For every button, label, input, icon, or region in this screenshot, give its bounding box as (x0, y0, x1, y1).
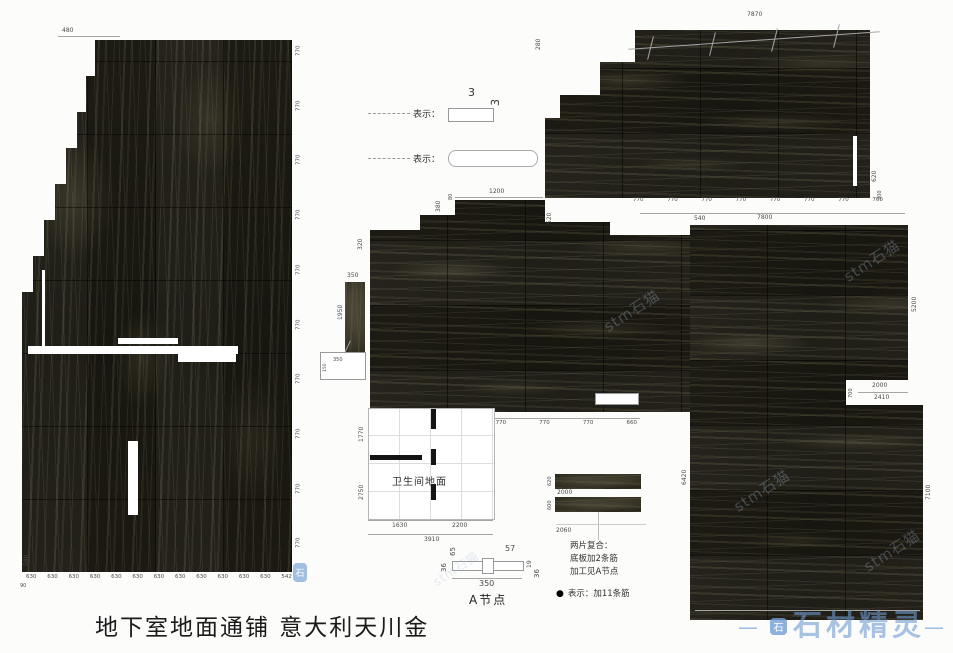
wall-segment (431, 449, 436, 465)
composite-strip-1 (555, 474, 641, 489)
right-stone-panel (690, 225, 925, 620)
dim-label: 770 (804, 198, 815, 204)
dim-label: 630 (175, 575, 186, 581)
brand-dash-left: — (738, 615, 758, 639)
dim-label: 770 (667, 198, 678, 204)
dim-label: 2410 (874, 395, 889, 401)
dim-label: 620 (872, 171, 878, 182)
dim-label: 770 (701, 198, 712, 204)
dim-label: 5200 (912, 297, 918, 312)
dim-label: 2000 (872, 383, 887, 389)
dim-label: 1950 (338, 305, 344, 320)
dim-line (640, 213, 905, 214)
brand-logo-icon: 石 (770, 618, 787, 635)
dim-label: 2060 (556, 528, 571, 534)
left-panel-gap (178, 354, 236, 362)
left-panel-joint-grid (20, 40, 292, 572)
dim-label: 770 (539, 421, 550, 427)
dim-label: 3910 (424, 537, 439, 543)
dim-label: 630 (132, 575, 143, 581)
dim-label: 80 (449, 194, 454, 200)
dim-label: 770 (496, 421, 507, 427)
dim-label: 770 (736, 198, 747, 204)
dim-label: 36 (441, 563, 448, 572)
brand-icon-glyph: 石 (295, 566, 304, 579)
dim-label: 770 (297, 155, 303, 166)
top-right-joint-grid (545, 30, 870, 198)
dim-label: 660 (627, 421, 638, 427)
dim-label: 1630 (392, 523, 407, 529)
dim-label: 630 (47, 575, 58, 581)
a-node-title: A节点 (469, 591, 507, 608)
dim-label: 380 (436, 201, 442, 212)
dim-label: 7870 (747, 12, 762, 18)
thickness-dim: 3 (489, 98, 503, 106)
drawing-title: 地下室地面通铺 意大利天川金 (95, 608, 429, 642)
dim-label: 770 (583, 421, 594, 427)
legend-label-1: 表示： (413, 107, 440, 120)
dim-label: 542 (281, 575, 292, 581)
top-right-stone-panel (545, 30, 870, 198)
center-joint-grid (370, 200, 690, 435)
dim-label: 2200 (452, 523, 467, 529)
dim-line (858, 392, 908, 393)
dim-label: 770 (838, 198, 849, 204)
brand-dash-right: — (924, 615, 944, 639)
left-panel-right-dims: 770770770770770770770770770770 (295, 48, 304, 546)
dim-label: 1200 (489, 189, 504, 195)
dim-label: 520 (547, 213, 553, 224)
dim-label: 700 (872, 198, 883, 204)
legend-profile-flat (448, 108, 494, 122)
dim-label: 350 (333, 358, 343, 363)
dim-label: 770 (633, 198, 644, 204)
left-panel-gap (128, 441, 138, 515)
dim-label: 630 (90, 575, 101, 581)
dim-label: 19 (527, 560, 533, 568)
extension-line (556, 524, 646, 525)
wall-segment (370, 455, 422, 460)
dim-label: 2750 (359, 485, 365, 500)
dim-label: 36 (534, 569, 541, 578)
center-stone-panel (370, 200, 690, 435)
dim-label: 350 (479, 580, 494, 588)
a-node-profile-left (452, 561, 484, 571)
dim-label: 90 (20, 584, 26, 589)
left-stone-panel (20, 40, 292, 572)
bathroom-label: 卫生间地面 (392, 473, 447, 488)
brand-logo-icon-small: 石 (293, 563, 307, 582)
dim-label: 770 (297, 210, 303, 221)
dim-line (455, 197, 543, 198)
dim-label: 770 (297, 100, 303, 111)
dim-label: 1770 (359, 427, 365, 442)
a-node-profile-right (492, 561, 524, 571)
dim-label: 770 (297, 483, 303, 494)
rib-legend-note: ●表示：加11条筋 (556, 587, 630, 599)
narrow-stone-strip (345, 282, 365, 352)
dim-label: 150 (324, 363, 329, 372)
dim-label: 280 (536, 39, 542, 50)
dim-label: 700 (849, 388, 854, 398)
dim-label: 770 (297, 264, 303, 275)
dim-line (368, 520, 493, 521)
dim-label: 57 (505, 545, 515, 553)
dim-label: 770 (297, 538, 303, 549)
rib-legend-text: 表示：加11条筋 (568, 589, 630, 599)
top-right-bottom-dims: 770770770770770770770700 (633, 198, 883, 204)
stone-layout-drawing: 480 770770770770770770770770770770 63063… (0, 0, 953, 653)
composite-note: 两片复合： 底板加2条筋 加工见A节点 (570, 540, 618, 580)
wall-segment (431, 409, 436, 429)
dim-label: 630 (69, 575, 80, 581)
dim-label: 630 (239, 575, 250, 581)
dim-label: 350 (347, 273, 358, 279)
dim-label: 320 (358, 239, 364, 250)
left-panel-bottom-dims: 630630630630630630630630630630630630542 (26, 575, 292, 581)
bullet-icon: ● (556, 589, 564, 599)
dim-label: 630 (154, 575, 165, 581)
legend-leader-line (368, 158, 410, 159)
a-node-joint (482, 558, 494, 574)
dim-label: 770 (297, 319, 303, 330)
dim-line (368, 534, 493, 535)
dim-label: 620 (548, 476, 553, 486)
legend-leader-line (368, 113, 410, 114)
dim-label: 580 (24, 555, 30, 566)
composite-strip-2 (555, 497, 641, 512)
dim-label: 600 (548, 500, 553, 510)
dim-label: 770 (297, 429, 303, 440)
right-joint-grid (690, 225, 925, 620)
dim-label: 630 (111, 575, 122, 581)
top-right-gap (853, 136, 857, 186)
dim-label: 540 (694, 216, 705, 222)
legend-label-2: 表示： (413, 152, 440, 165)
leader-line (598, 512, 599, 540)
left-panel-gap (118, 338, 178, 344)
legend-profile-bullnose (448, 150, 538, 167)
dim-label: 770 (297, 374, 303, 385)
small-tag-box (595, 393, 639, 405)
dim-label: 2000 (557, 490, 572, 496)
left-panel-gap (42, 270, 45, 346)
dim-label: 630 (218, 575, 229, 581)
thickness-dim: 3 (468, 86, 475, 99)
brand-icon-glyph: 石 (774, 619, 784, 634)
dim-label: 630 (26, 575, 37, 581)
dim-label: 630 (260, 575, 271, 581)
left-panel-gap (28, 346, 238, 354)
dim-label: 7100 (926, 485, 932, 500)
dim-label: 7800 (757, 215, 772, 221)
dim-line (58, 36, 120, 37)
dim-label: 630 (196, 575, 207, 581)
dim-label: 65 (450, 547, 457, 556)
dim-label: 6420 (682, 470, 688, 485)
dim-label: 770 (297, 46, 303, 57)
dim-label: 480 (62, 28, 73, 34)
dim-label: 770 (770, 198, 781, 204)
brand-watermark-text: 石材精灵 (793, 602, 925, 644)
